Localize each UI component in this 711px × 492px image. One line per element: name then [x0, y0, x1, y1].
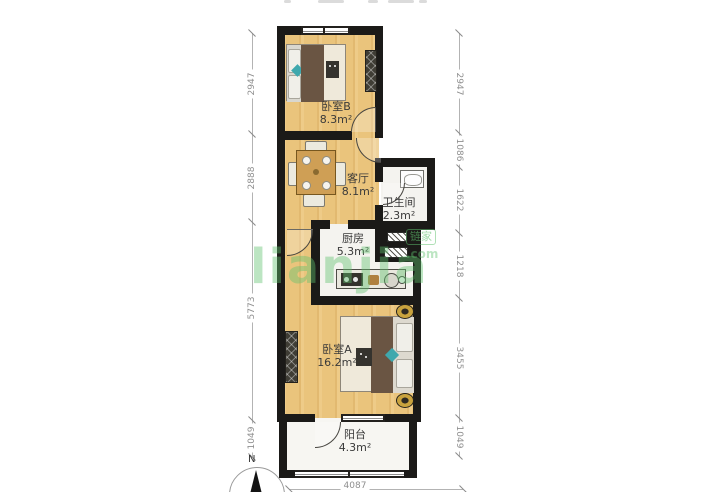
dimension-label: 2947 — [247, 70, 257, 99]
wall — [413, 228, 421, 305]
wall — [427, 158, 435, 230]
plate — [302, 156, 311, 165]
top-dimension-cut-mark — [284, 0, 291, 3]
dimension-label: 1218 — [454, 252, 464, 281]
bottom-dimension-line — [289, 489, 463, 490]
room-name: 客厅 — [327, 172, 389, 185]
room-name: 阳台 — [324, 428, 386, 441]
room-name: 卫生间 — [375, 196, 423, 209]
flue-hatch — [384, 247, 408, 258]
flue-hatch — [387, 232, 407, 242]
dimension-label: 1622 — [454, 186, 464, 215]
wall — [279, 470, 295, 478]
wall — [348, 220, 378, 229]
room-label-living-room: 客厅 8.1m² — [327, 172, 389, 198]
dining-chair — [303, 194, 325, 207]
sink-basin — [404, 174, 422, 186]
room-area: 4.3m² — [324, 441, 386, 454]
room-area: 2.3m² — [375, 209, 423, 222]
bedroom-a-window — [341, 414, 385, 422]
room-area: 8.3m² — [300, 113, 372, 126]
cushion-dot — [329, 65, 331, 67]
plate — [322, 156, 331, 165]
wall — [413, 296, 421, 422]
stove — [341, 273, 363, 286]
nightstand — [396, 393, 414, 408]
compass-north-label: N — [248, 454, 255, 465]
bedroom-b-bed — [286, 44, 346, 101]
centerpiece — [313, 169, 319, 175]
bed-pillow — [396, 359, 413, 388]
room-name: 卧室B — [300, 100, 372, 113]
top-dimension-cut-mark — [388, 0, 414, 3]
bed-pillow — [396, 323, 413, 352]
dimension-label: 3455 — [454, 344, 464, 373]
dimension-label: 2888 — [247, 164, 257, 193]
window-tick — [301, 28, 303, 33]
bed-blanket — [301, 45, 324, 102]
bedroom-a-wardrobe — [285, 331, 298, 383]
balcony-window — [295, 470, 404, 478]
wall — [409, 414, 417, 478]
bed-pillow — [288, 75, 301, 99]
dimension-label: 2947 — [454, 70, 464, 99]
nightstand — [396, 304, 414, 319]
entry-door-leaf — [287, 229, 313, 230]
compass-needle-icon — [249, 470, 263, 492]
room-name: 厨房 — [327, 232, 379, 245]
wall — [277, 26, 285, 422]
room-label-balcony: 阳台 4.3m² — [324, 428, 386, 454]
top-dimension-cut-mark — [368, 0, 378, 3]
kitchen-counter — [336, 269, 406, 289]
dimension-label: 5773 — [247, 294, 257, 323]
dimension-label: 1049 — [247, 424, 257, 453]
room-label-bathroom: 卫生间 2.3m² — [375, 196, 423, 222]
wall — [404, 470, 417, 478]
wall — [283, 131, 352, 140]
window-tick — [348, 472, 350, 476]
plate — [302, 181, 311, 190]
room-label-kitchen: 厨房 5.3m² — [327, 232, 379, 258]
faucet — [398, 276, 406, 284]
room-label-bedroom-b: 卧室B 8.3m² — [300, 100, 372, 126]
cushion-dot — [334, 65, 336, 67]
window-glass-line — [301, 31, 350, 32]
floor-plan-image: 卧室B 8.3m² 客厅 8.1m² 卫生间 2.3m² 厨房 5.3m² 卧室… — [0, 0, 711, 492]
wall — [279, 414, 287, 478]
window-glass-line — [341, 418, 385, 419]
room-area: 16.2m² — [304, 356, 370, 369]
room-label-bedroom-a: 卧室A 16.2m² — [304, 343, 370, 369]
window-tick — [323, 28, 325, 33]
dimension-label: 1049 — [454, 423, 464, 452]
wall — [375, 158, 435, 167]
burner — [344, 277, 349, 282]
bedroom-b-wardrobe — [365, 50, 377, 92]
room-area: 5.3m² — [327, 245, 379, 258]
window-tick — [383, 416, 385, 420]
bed-cushion — [326, 61, 339, 78]
window-tick — [348, 28, 350, 33]
dimension-label: 4087 — [341, 481, 370, 491]
bedroom-b-window — [301, 26, 350, 35]
room-name: 卧室A — [304, 343, 370, 356]
dimension-label: 1086 — [454, 136, 464, 165]
kitchen-sink — [384, 273, 399, 288]
top-dimension-cut-mark — [419, 0, 427, 3]
counter-item — [368, 275, 379, 285]
burner — [353, 277, 358, 282]
window-tick — [341, 416, 343, 420]
top-dimension-cut-mark — [318, 0, 344, 3]
